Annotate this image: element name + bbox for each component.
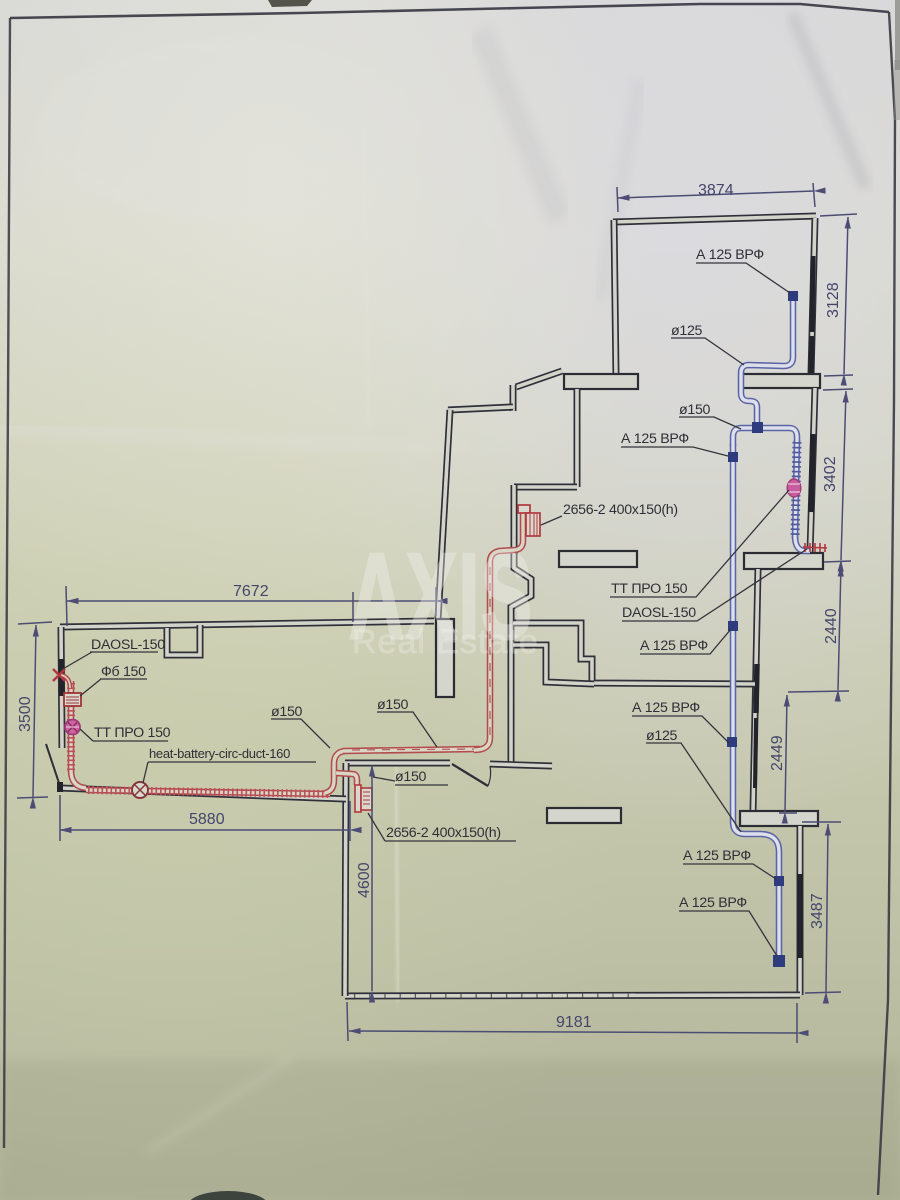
svg-text:ТТ ПРО 150: ТТ ПРО 150: [611, 581, 688, 597]
svg-text:heat-battery-circ-duct-160: heat-battery-circ-duct-160: [149, 746, 290, 761]
svg-text:А 125 ВРФ: А 125 ВРФ: [632, 700, 700, 716]
svg-text:3874: 3874: [698, 182, 734, 199]
svg-text:А 125 ВРФ: А 125 ВРФ: [683, 848, 751, 864]
svg-text:2440: 2440: [823, 608, 840, 644]
svg-text:А 125 ВРФ: А 125 ВРФ: [696, 247, 764, 263]
svg-text:ø150: ø150: [271, 704, 303, 720]
svg-text:А 125 ВРФ: А 125 ВРФ: [640, 638, 708, 654]
svg-text:7672: 7672: [233, 583, 269, 600]
svg-text:3128: 3128: [825, 282, 842, 318]
svg-text:3402: 3402: [822, 456, 839, 492]
svg-text:2656-2 400x150(h): 2656-2 400x150(h): [386, 825, 501, 841]
svg-text:ø150: ø150: [377, 697, 409, 713]
svg-text:5880: 5880: [189, 811, 225, 828]
svg-text:А 125 ВРФ: А 125 ВРФ: [679, 895, 747, 911]
svg-text:ø125: ø125: [671, 323, 703, 339]
svg-text:3500: 3500: [17, 696, 34, 732]
svg-text:DAOSL-150: DAOSL-150: [622, 605, 696, 621]
svg-text:ø150: ø150: [395, 769, 427, 785]
svg-text:А 125 ВРФ: А 125 ВРФ: [621, 431, 689, 447]
svg-text:3487: 3487: [809, 893, 826, 929]
svg-text:Фб 150: Фб 150: [101, 664, 146, 680]
svg-text:2449: 2449: [769, 735, 786, 771]
svg-text:2656-2 400x150(h): 2656-2 400x150(h): [563, 502, 678, 518]
svg-text:9181: 9181: [556, 1014, 592, 1031]
svg-text:4600: 4600: [356, 862, 373, 898]
svg-text:ø125: ø125: [646, 728, 678, 744]
svg-text:ТТ ПРО 150: ТТ ПРО 150: [94, 725, 171, 741]
svg-text:Real Estate: Real Estate: [352, 623, 539, 661]
svg-text:ø150: ø150: [679, 402, 711, 418]
svg-text:DAOSL-150: DAOSL-150: [91, 637, 165, 653]
